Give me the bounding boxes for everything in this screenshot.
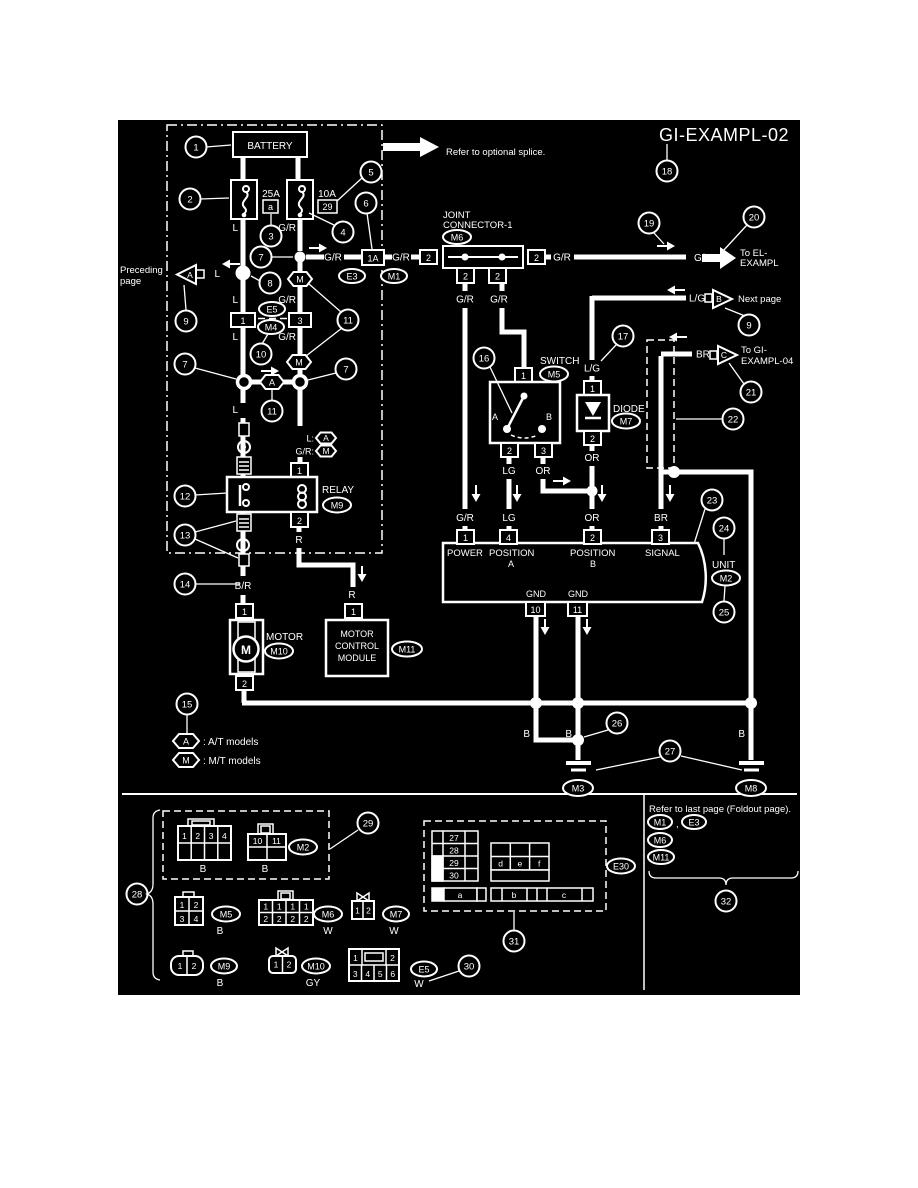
wire-label-gr: G/R bbox=[456, 513, 474, 524]
terminal-1: 1 bbox=[240, 316, 245, 326]
connector-m3: M3 bbox=[572, 784, 585, 794]
pin: 3 bbox=[353, 969, 358, 979]
terminal-2: 2 bbox=[590, 533, 595, 543]
to-gi-text2: EXAMPL-04 bbox=[741, 356, 793, 367]
connector-m2: M2 bbox=[297, 843, 310, 853]
callout-6: 6 bbox=[363, 199, 368, 210]
wire-label-br: BR bbox=[654, 513, 668, 524]
to-el-text2: EXAMPL bbox=[740, 258, 779, 269]
wire-label-l: L bbox=[232, 223, 238, 234]
connector-m4: M4 bbox=[265, 323, 278, 333]
wiring-diagram-page: BATTERY 25A a 10A 29 1 3 E5 bbox=[0, 0, 918, 1188]
foldout-text: Refer to last page (Foldout page). bbox=[649, 804, 791, 815]
terminal-11: 11 bbox=[573, 605, 582, 615]
legend-mt-text: : M/T models bbox=[203, 756, 261, 767]
callout-16: 16 bbox=[479, 354, 490, 365]
terminal-1: 1 bbox=[297, 466, 302, 476]
wire-label-lgrn: LG bbox=[502, 466, 516, 477]
pin: 4 bbox=[194, 914, 199, 924]
fuse-e: e bbox=[518, 859, 523, 869]
callout-7: 7 bbox=[343, 365, 348, 376]
terminal-1: 1 bbox=[521, 371, 526, 381]
terminal-1: 1 bbox=[463, 533, 468, 543]
fuse-id-a: a bbox=[268, 202, 273, 212]
callout-31: 31 bbox=[509, 937, 520, 948]
pin: 3 bbox=[180, 914, 185, 924]
pin: 1 bbox=[290, 902, 295, 912]
fuse-28: 28 bbox=[449, 846, 459, 856]
callout-7: 7 bbox=[258, 253, 263, 264]
fuse-amp-10: 10A bbox=[318, 189, 336, 200]
optional-splice-dot bbox=[236, 266, 251, 281]
fuse-a: a bbox=[458, 890, 463, 900]
motor-label: MOTOR bbox=[266, 632, 303, 643]
wire-label-gr: G/R bbox=[694, 253, 712, 264]
optional-splice-note: Refer to optional splice. bbox=[446, 147, 545, 158]
mt-hexagon-label: M bbox=[322, 446, 329, 456]
wire-label-br: BR bbox=[696, 350, 710, 361]
mcm-label1: MOTOR bbox=[340, 629, 374, 639]
callout-9: 9 bbox=[183, 317, 188, 328]
wire-label-r: R bbox=[295, 535, 302, 546]
triangle-tab bbox=[705, 294, 712, 302]
callout-32: 32 bbox=[721, 897, 732, 908]
callout-19: 19 bbox=[644, 219, 655, 230]
pin: 3 bbox=[209, 831, 214, 841]
connector-m1: M1 bbox=[388, 272, 401, 282]
connector-m11: M11 bbox=[653, 853, 670, 863]
callout-2: 2 bbox=[187, 195, 192, 206]
pin: 1 bbox=[355, 906, 360, 916]
callout-13: 13 bbox=[180, 531, 191, 542]
fuse-29: 29 bbox=[449, 858, 459, 868]
callout-18: 18 bbox=[662, 167, 673, 178]
connector-m10: M10 bbox=[270, 647, 288, 657]
wire-label-or: OR bbox=[585, 513, 600, 524]
wire-label-gr: G/R bbox=[324, 253, 342, 264]
wire-l-colon: L: bbox=[306, 434, 314, 444]
wire-label-l: L bbox=[232, 405, 238, 416]
connector-m9: M9 bbox=[218, 962, 231, 972]
wire-label-gr: G/R bbox=[392, 253, 410, 264]
fuse-id-29: 29 bbox=[322, 202, 332, 212]
terminal-2: 2 bbox=[463, 272, 468, 282]
wire-label-br-slash: B/R bbox=[235, 581, 252, 592]
connector-e3: E3 bbox=[346, 272, 357, 282]
connector-e3: E3 bbox=[688, 818, 699, 828]
callout-1: 1 bbox=[193, 143, 198, 154]
switch-pos-a: A bbox=[492, 412, 498, 422]
connector-m7: M7 bbox=[390, 910, 403, 920]
connector-m6: M6 bbox=[322, 910, 335, 920]
callout-23: 23 bbox=[707, 496, 718, 507]
connector-m10: M10 bbox=[307, 962, 325, 972]
callout-11: 11 bbox=[267, 407, 277, 418]
inline-connector bbox=[239, 423, 249, 436]
terminal-2: 2 bbox=[590, 434, 595, 444]
wire-label-or: OR bbox=[536, 466, 551, 477]
wire-gr-colon: G/R: bbox=[295, 447, 314, 457]
callout-27: 27 bbox=[665, 747, 676, 758]
callout-11: 11 bbox=[343, 316, 353, 327]
wire-label-lg: L/G bbox=[584, 364, 600, 375]
fuse-amp-25: 25A bbox=[262, 189, 280, 200]
terminal-2: 2 bbox=[426, 253, 431, 263]
wire-label-l: L bbox=[232, 295, 238, 306]
terminal-3: 3 bbox=[541, 446, 546, 456]
pin: 5 bbox=[378, 969, 383, 979]
unit-component: POWER POSITION A POSITION B SIGNAL GND G… bbox=[443, 530, 740, 616]
pin: 1 bbox=[178, 961, 183, 971]
connector-color: W bbox=[389, 926, 399, 937]
callout-10: 10 bbox=[256, 350, 267, 361]
terminal-2: 2 bbox=[242, 679, 247, 689]
connector-m2: M2 bbox=[720, 574, 733, 584]
unit-position-a: POSITION bbox=[489, 548, 535, 559]
unit-label: UNIT bbox=[712, 560, 735, 571]
pin: 2 bbox=[287, 960, 292, 970]
callout-21: 21 bbox=[746, 388, 757, 399]
pin: 2 bbox=[390, 953, 395, 963]
mt-hexagon-label: M bbox=[296, 275, 304, 285]
callout-22: 22 bbox=[728, 415, 739, 426]
wire-label-b: B bbox=[523, 729, 530, 740]
connector-color: GY bbox=[306, 978, 321, 989]
legend-a: A bbox=[183, 737, 189, 747]
connector-e5: E5 bbox=[266, 305, 277, 315]
splice-dot bbox=[587, 486, 598, 497]
splice-dot bbox=[668, 466, 680, 478]
callout-26: 26 bbox=[612, 719, 623, 730]
preceding-page-text2: page bbox=[120, 276, 141, 287]
pin: 2 bbox=[304, 914, 309, 924]
mcm-label2: CONTROL bbox=[335, 641, 379, 651]
pin: 2 bbox=[194, 900, 199, 910]
triangle-b-label: B bbox=[716, 294, 722, 304]
unit-gnd1: GND bbox=[526, 589, 547, 599]
callout-30: 30 bbox=[464, 962, 475, 973]
pin: 11 bbox=[272, 836, 281, 846]
preceding-page-text1: Preceding bbox=[120, 265, 163, 276]
pin: 1 bbox=[277, 902, 282, 912]
connector-color: B bbox=[200, 864, 207, 875]
wire-label-r: R bbox=[348, 590, 355, 601]
pin: 2 bbox=[366, 906, 371, 916]
pin: 4 bbox=[365, 969, 370, 979]
pin: 2 bbox=[290, 914, 295, 924]
callout-5: 5 bbox=[368, 168, 373, 179]
pin: 1 bbox=[182, 831, 187, 841]
wire-label-gr: G/R bbox=[490, 295, 508, 306]
callout-25: 25 bbox=[719, 608, 730, 619]
at-hexagon-label: A bbox=[323, 433, 329, 443]
triangle-tab bbox=[196, 270, 204, 278]
to-gi-text1: To GI- bbox=[741, 345, 767, 356]
legend-at-text: : A/T models bbox=[203, 737, 258, 748]
unit-gnd2: GND bbox=[568, 589, 589, 599]
pin: 1 bbox=[274, 960, 279, 970]
unit-signal: SIGNAL bbox=[645, 548, 680, 559]
mt-hexagon-label: M bbox=[295, 358, 303, 368]
terminal-2: 2 bbox=[297, 516, 302, 526]
triangle-c-label: C bbox=[721, 350, 727, 360]
next-page-text: Next page bbox=[738, 294, 781, 305]
wire-label-l: L bbox=[232, 332, 238, 343]
wire-label-lg: L/G bbox=[689, 294, 705, 305]
callout-17: 17 bbox=[618, 332, 629, 343]
splice-ring bbox=[294, 376, 307, 389]
callout-29: 29 bbox=[363, 819, 374, 830]
motor-m: M bbox=[241, 643, 251, 657]
pin: 2 bbox=[192, 961, 197, 971]
terminal-1: 1 bbox=[590, 384, 595, 394]
pin: 6 bbox=[390, 969, 395, 979]
inline-connector bbox=[239, 554, 249, 566]
connector-m5: M5 bbox=[548, 370, 561, 380]
terminal-1: 1 bbox=[351, 607, 356, 617]
fuse-30: 30 bbox=[449, 871, 459, 881]
callout-12: 12 bbox=[180, 492, 191, 503]
terminal-2: 2 bbox=[495, 272, 500, 282]
connector-color: B bbox=[217, 926, 224, 937]
pin: 1 bbox=[353, 953, 358, 963]
pin: 2 bbox=[263, 914, 268, 924]
wire-label-or: OR bbox=[585, 453, 600, 464]
triangle-a-label: A bbox=[187, 270, 193, 280]
pin: 4 bbox=[222, 831, 227, 841]
connector-m11: M11 bbox=[399, 645, 416, 655]
pin: 1 bbox=[263, 902, 268, 912]
triangle-tab bbox=[710, 351, 717, 359]
terminal-3: 3 bbox=[297, 316, 302, 326]
battery-label: BATTERY bbox=[247, 141, 293, 152]
unit-power: POWER bbox=[447, 548, 483, 559]
connector-m1: M1 bbox=[654, 818, 667, 828]
wire-label-gr: G/R bbox=[553, 253, 571, 264]
terminal-1: 1 bbox=[242, 607, 247, 617]
terminal-2: 2 bbox=[534, 253, 539, 263]
page-title: GI-EXAMPL-02 bbox=[659, 125, 789, 145]
splice-dot bbox=[295, 252, 306, 263]
callout-7: 7 bbox=[182, 360, 187, 371]
connector-color: B bbox=[262, 864, 269, 875]
pin: 2 bbox=[277, 914, 282, 924]
wire-label-gr: G/R bbox=[278, 332, 296, 343]
fuse-b: b bbox=[512, 890, 517, 900]
callout-15: 15 bbox=[182, 700, 193, 711]
callout-14: 14 bbox=[180, 580, 191, 591]
callout-28: 28 bbox=[132, 890, 143, 901]
callout-4: 4 bbox=[340, 228, 345, 239]
legend-m: M bbox=[182, 756, 190, 766]
callout-8: 8 bbox=[267, 279, 272, 290]
connector-color: W bbox=[414, 979, 424, 990]
wire-label-gr: G/R bbox=[278, 295, 296, 306]
connector-color: W bbox=[323, 926, 333, 937]
connector-m6: M6 bbox=[451, 233, 464, 243]
switch-pos-b: B bbox=[546, 412, 552, 422]
relay-label: RELAY bbox=[322, 485, 354, 496]
wire-label-gr: G/R bbox=[456, 295, 474, 306]
unit-position-a2: A bbox=[508, 559, 514, 569]
terminal-4: 4 bbox=[506, 533, 511, 543]
connector-m9: M9 bbox=[331, 501, 344, 511]
mcm-label3: MODULE bbox=[338, 653, 377, 663]
highlighted-cell bbox=[432, 856, 443, 881]
wire-label-b: B bbox=[565, 729, 572, 740]
callout-24: 24 bbox=[719, 524, 730, 535]
wire-label-lgrn: LG bbox=[502, 513, 516, 524]
wire-label-b: B bbox=[738, 729, 745, 740]
switch-label: SWITCH bbox=[540, 356, 579, 367]
terminal-3: 3 bbox=[658, 533, 663, 543]
fuse-27: 27 bbox=[449, 833, 459, 843]
connector-m7: M7 bbox=[620, 417, 633, 427]
terminal-1a: 1A bbox=[367, 254, 378, 264]
callout-9: 9 bbox=[746, 321, 751, 332]
connector-e30: E30 bbox=[613, 862, 629, 872]
at-hexagon-label: A bbox=[269, 378, 275, 388]
unit-position-b: POSITION bbox=[570, 548, 616, 559]
highlighted-cell bbox=[432, 888, 444, 901]
terminal-10: 10 bbox=[530, 605, 540, 615]
wiring-diagram-canvas: BATTERY 25A a 10A 29 1 3 E5 bbox=[0, 0, 918, 1188]
unit-position-b2: B bbox=[590, 559, 596, 569]
pin: 10 bbox=[253, 836, 263, 846]
connector-m8: M8 bbox=[745, 784, 758, 794]
comma: , bbox=[676, 819, 679, 830]
callout-3: 3 bbox=[268, 232, 273, 243]
connector-m5: M5 bbox=[220, 910, 233, 920]
connector-e5: E5 bbox=[418, 965, 429, 975]
terminal-2: 2 bbox=[507, 446, 512, 456]
pin: 1 bbox=[180, 900, 185, 910]
callout-20: 20 bbox=[749, 213, 760, 224]
splice-ring bbox=[238, 376, 251, 389]
connector-m6: M6 bbox=[654, 836, 667, 846]
wire-label-l: L bbox=[214, 269, 220, 280]
fuse-d: d bbox=[498, 859, 503, 869]
pin: 2 bbox=[195, 831, 200, 841]
pin: 1 bbox=[304, 902, 309, 912]
connector-color: B bbox=[217, 978, 224, 989]
